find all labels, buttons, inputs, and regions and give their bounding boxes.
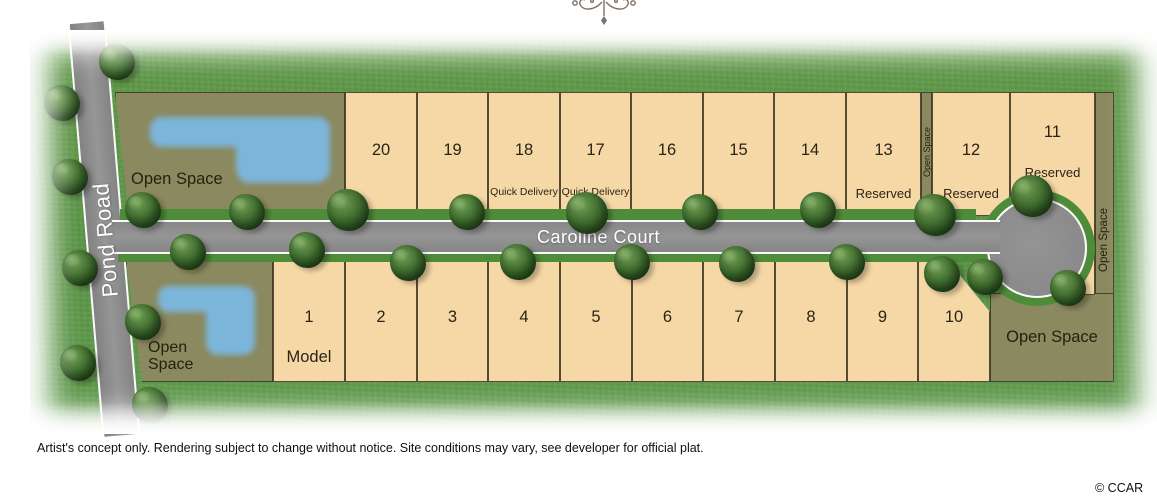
lot-note: Quick Delivery: [489, 186, 559, 198]
lot-5: 5: [560, 261, 632, 382]
lot-number: 5: [561, 308, 631, 327]
tree-icon: [500, 244, 536, 280]
lot-number: 6: [633, 308, 702, 327]
tree-icon: [132, 387, 168, 423]
lot-3: 3: [417, 261, 488, 382]
tree-icon: [125, 304, 161, 340]
tree-icon: [44, 85, 80, 121]
lot-number: 2: [346, 308, 416, 327]
lot-number: 17: [561, 141, 630, 160]
tree-icon: [449, 194, 485, 230]
tree-icon: [229, 194, 265, 230]
tree-icon: [390, 245, 426, 281]
lot-number: 11: [1011, 123, 1094, 142]
lot-number: 9: [848, 308, 917, 327]
lot-note: Model: [274, 348, 344, 367]
lot-number: 10: [919, 308, 989, 327]
open-space-lower-right-label: Open Space: [990, 329, 1114, 346]
tree-icon: [99, 44, 135, 80]
tree-icon: [682, 194, 718, 230]
lot-number: 16: [632, 141, 702, 160]
disclaimer-text: Artist's concept only. Rendering subject…: [37, 441, 704, 455]
lot-number: 3: [418, 308, 487, 327]
tree-icon: [967, 259, 1003, 295]
lot-number: 13: [847, 141, 920, 160]
tree-icon: [924, 256, 960, 292]
lot-18: 18 Quick Delivery: [488, 92, 560, 216]
lot-note: Reserved: [847, 186, 920, 201]
lot-number: 20: [346, 141, 416, 160]
tree-icon: [1050, 270, 1086, 306]
tree-icon: [566, 192, 608, 234]
lot-number: 8: [776, 308, 846, 327]
lot-number: 1: [274, 308, 344, 327]
lot-1: 1 Model: [273, 261, 345, 382]
tree-icon: [62, 250, 98, 286]
open-space-lower-left-line2: Space: [148, 356, 193, 373]
open-space-lower-left-line1: Open: [148, 339, 193, 356]
open-space-upper-left-label: Open Space: [131, 171, 223, 188]
tree-icon: [719, 246, 755, 282]
lot-6: 6: [632, 261, 703, 382]
lot-number: 15: [704, 141, 773, 160]
open-space-lower-left-label: Open Space: [148, 339, 193, 373]
lot-15: 15: [703, 92, 774, 216]
lot-number: 19: [418, 141, 487, 160]
flourish-ornament-icon: [568, 0, 640, 26]
lot-9: 9: [847, 261, 918, 382]
open-space-mid-strip-label: Open Space: [922, 127, 932, 177]
lot-number: 7: [704, 308, 774, 327]
tree-icon: [60, 345, 96, 381]
tree-icon: [800, 192, 836, 228]
lot-number: 18: [489, 141, 559, 160]
lot-13: 13 Reserved: [846, 92, 921, 216]
tree-icon: [125, 192, 161, 228]
tree-icon: [289, 232, 325, 268]
site-plan-page: { "map": { "streets": { "vertical": "Pon…: [0, 0, 1157, 498]
lot-number: 14: [775, 141, 845, 160]
tree-icon: [614, 244, 650, 280]
tree-icon: [170, 234, 206, 270]
open-space-right-strip-label: Open Space: [1098, 208, 1110, 272]
lot-number: 12: [933, 141, 1009, 160]
tree-icon: [829, 244, 865, 280]
tree-icon: [327, 189, 369, 231]
copyright-credit: © CCAR: [1095, 481, 1143, 495]
lot-8: 8: [775, 261, 847, 382]
lot-number: 4: [489, 308, 559, 327]
tree-icon: [1011, 175, 1053, 217]
tree-icon: [914, 194, 956, 236]
tree-icon: [52, 159, 88, 195]
